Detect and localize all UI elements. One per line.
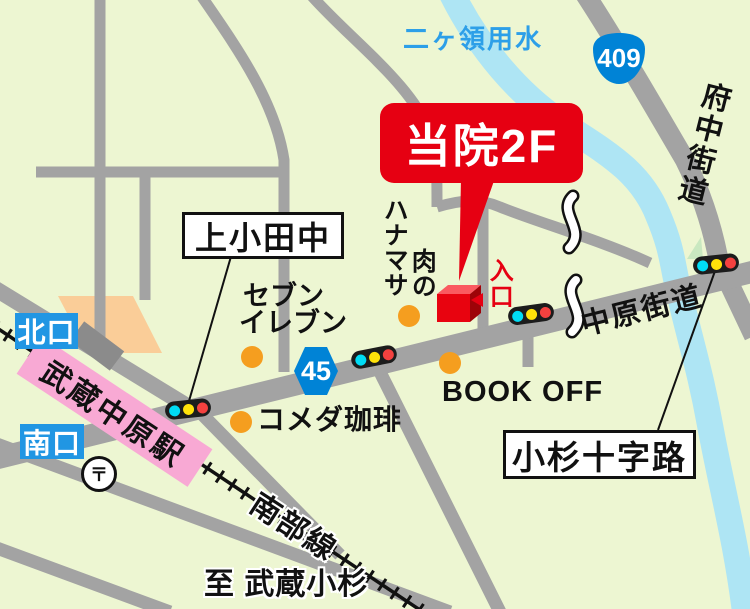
kosugi-crossroads-label-box: 小杉十字路 — [503, 430, 696, 479]
shop-dot-icon-bookoff — [439, 352, 461, 374]
kamikodanaka-label-box: 上小田中 — [182, 212, 344, 259]
south-exit-label: 南口 — [20, 424, 84, 459]
shop-dot-icon-komeda — [230, 411, 252, 433]
post-office-icon: 〒 — [81, 456, 117, 492]
traffic-light-red-lamp — [539, 306, 551, 318]
seven-eleven-label-line1: セブン — [243, 282, 324, 310]
seven-eleven-label-line2: イレブン — [239, 309, 347, 337]
clinic-callout-box: 当院2F — [380, 103, 583, 183]
hanamasa-label-meat: 肉の — [409, 248, 435, 298]
hanamasa-label-name: ハナマサ — [381, 197, 407, 297]
access-map: 武蔵中原駅 北口 南口 〒 上小田中 小杉十字路 当院2F 409 45 二ヶ領… — [0, 0, 750, 609]
traffic-light-red-lamp — [381, 348, 394, 361]
shop-dot-icon-hanamasa — [398, 305, 420, 327]
traffic-light-red-lamp — [724, 256, 736, 268]
book-off-label: BOOK OFF — [442, 377, 603, 407]
route-409-number: 409 — [592, 32, 646, 85]
traffic-light-red-lamp — [196, 401, 208, 413]
traffic-light-cyan-lamp — [354, 353, 367, 366]
traffic-light-yellow-lamp — [182, 403, 194, 415]
komeda-coffee-label: コメダ珈琲 — [257, 405, 402, 434]
traffic-light-cyan-lamp — [168, 404, 180, 416]
road — [0, 547, 170, 609]
traffic-light-cyan-lamp — [696, 259, 708, 271]
to-musashi-kosugi-label: 至 武蔵小杉 — [204, 569, 368, 601]
traffic-light-cyan-lamp — [511, 310, 523, 322]
traffic-light-yellow-lamp — [525, 308, 537, 320]
traffic-light-yellow-lamp — [368, 351, 381, 364]
traffic-light-yellow-lamp — [710, 258, 722, 270]
canal-label: 二ヶ領用水 — [403, 26, 543, 53]
minor-roads — [0, 0, 650, 609]
shop-dot-icon-seven-eleven — [241, 346, 263, 368]
kamikodanaka-leader-line — [189, 253, 232, 401]
route-45-number: 45 — [294, 347, 338, 395]
entrance-label: 入口 — [486, 258, 511, 310]
clinic-building-icon — [437, 285, 481, 322]
north-exit-label: 北口 — [15, 313, 78, 349]
